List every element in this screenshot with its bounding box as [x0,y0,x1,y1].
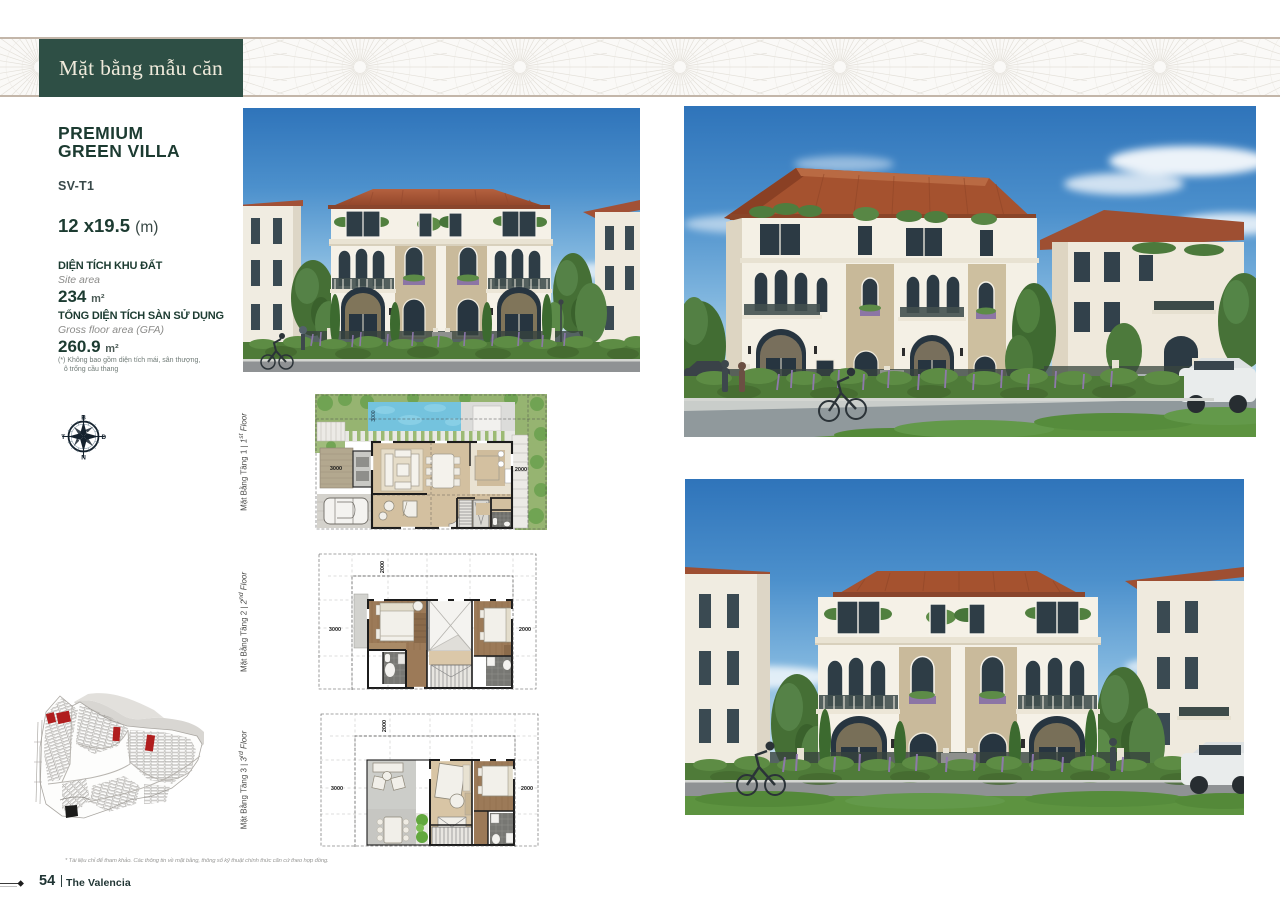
svg-text:2000: 2000 [521,786,533,792]
svg-text:T: T [61,434,65,441]
svg-text:N: N [81,454,86,460]
svg-text:3000: 3000 [330,466,342,472]
svg-text:3000: 3000 [371,410,377,421]
svg-text:3000: 3000 [331,786,343,792]
svg-text:2000: 2000 [382,720,388,732]
svg-text:2000: 2000 [519,627,531,633]
svg-text:2000: 2000 [380,561,386,573]
svg-text:3000: 3000 [329,627,341,633]
svg-text:B: B [81,414,86,421]
svg-text:Đ: Đ [101,434,106,441]
svg-text:2000: 2000 [515,467,527,473]
